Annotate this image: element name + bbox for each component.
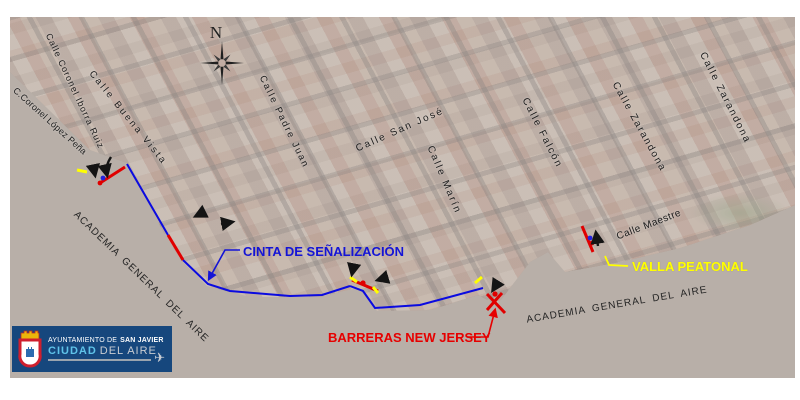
direction-arrows [95, 157, 598, 290]
signal-tape-line [127, 164, 483, 308]
logo-line1: AYUNTAMIENTO DESAN JAVIER [48, 337, 164, 345]
barrier-segment-on-tape [168, 235, 183, 260]
point-markers [98, 176, 595, 297]
red-point [98, 181, 103, 186]
red-point [360, 280, 365, 285]
compass-north-label: N [210, 23, 222, 42]
logo-ayuntamiento-san-javier: AYUNTAMIENTO DESAN JAVIER CIUDADDEL AIRE… [12, 326, 172, 372]
red-point [590, 241, 595, 246]
map-markup-overlay: N [10, 17, 795, 378]
barreras-leader-line [467, 310, 495, 337]
pedestrian-fence-dashes [77, 170, 482, 293]
new-jersey-barrier-markers [100, 167, 593, 313]
cinta-leader-line [209, 250, 240, 279]
screenshot: Calle Coronel Iborra Ruiz C.Coronel Lópe… [0, 0, 800, 400]
logo-line2-ciudad: CIUDAD [48, 345, 97, 357]
logo-line2: CIUDADDEL AIRE [48, 345, 164, 357]
blue-point [101, 176, 106, 181]
red-point [492, 291, 497, 296]
logo-line1-normal: AYUNTAMIENTO DE [48, 337, 117, 344]
compass-rose [200, 41, 244, 85]
logo-line1-bold: SAN JAVIER [120, 337, 164, 344]
valla-leader-line [605, 256, 628, 266]
aerial-map: Calle Coronel Iborra Ruiz C.Coronel Lópe… [10, 17, 795, 378]
logo-line2-del-aire: DEL AIRE [100, 345, 157, 357]
blue-point [588, 236, 593, 241]
logo-underline: ✈ [48, 359, 151, 361]
coat-of-arms-icon [17, 330, 43, 368]
airplane-icon: ✈ [154, 351, 165, 365]
